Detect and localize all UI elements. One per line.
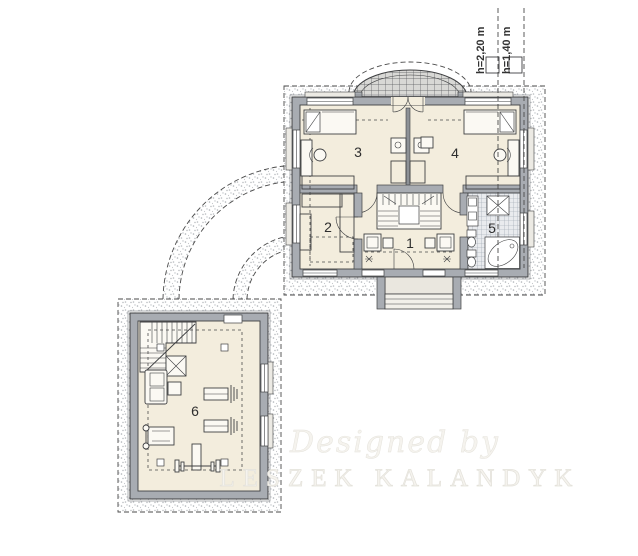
watermark-line1: Designed by [289, 425, 500, 460]
window-icon [362, 270, 384, 276]
stool-icon [168, 382, 181, 395]
bathtub-icon [483, 234, 523, 271]
room-5-label: 5 [488, 220, 496, 236]
staircase-icon [377, 193, 441, 229]
nightstand-icon [391, 138, 406, 153]
room-3-label: 3 [354, 144, 362, 160]
side-table-icon [421, 137, 433, 148]
chimney-icon [486, 57, 499, 73]
chimney-icon [224, 315, 242, 323]
height-lower-label: h=1,40 m [501, 26, 513, 74]
chair-icon [494, 149, 506, 161]
post-icon [221, 344, 228, 351]
room-1-label: 1 [406, 235, 414, 251]
arched-balcony [352, 70, 468, 98]
sofa-icon [145, 370, 167, 404]
room-6-label: 6 [191, 403, 199, 419]
post-icon [157, 459, 164, 466]
room-2-label: 2 [324, 219, 332, 235]
entry-balcony [377, 277, 461, 309]
toilet-icon [467, 230, 476, 237]
floor-plan-canvas: 3 4 2 1 5 h=2,20 m h=1,40 m [0, 0, 638, 556]
post-icon [157, 344, 164, 351]
partition-wall [354, 239, 362, 269]
partition-wall [406, 108, 410, 192]
room-4-label: 4 [451, 145, 459, 161]
floor-plan-drawing: 3 4 2 1 5 h=2,20 m h=1,40 m [0, 0, 638, 556]
armchair-icon [437, 234, 454, 251]
watermark-line2: LESZEK KALANDYK [220, 465, 581, 492]
partition-wall [354, 193, 362, 217]
side-table-icon [425, 238, 435, 248]
bidet-icon [467, 250, 476, 257]
height-upper-label: h=2,20 m [475, 26, 487, 74]
curved-roof-connector [163, 166, 284, 299]
partition-wall [377, 185, 443, 193]
side-table-icon [383, 238, 393, 248]
steps-icon [385, 294, 453, 309]
main-building: 3 4 2 1 5 [284, 57, 545, 309]
chair-icon [314, 149, 326, 161]
armchair-icon [364, 234, 381, 251]
window-icon [423, 270, 445, 276]
